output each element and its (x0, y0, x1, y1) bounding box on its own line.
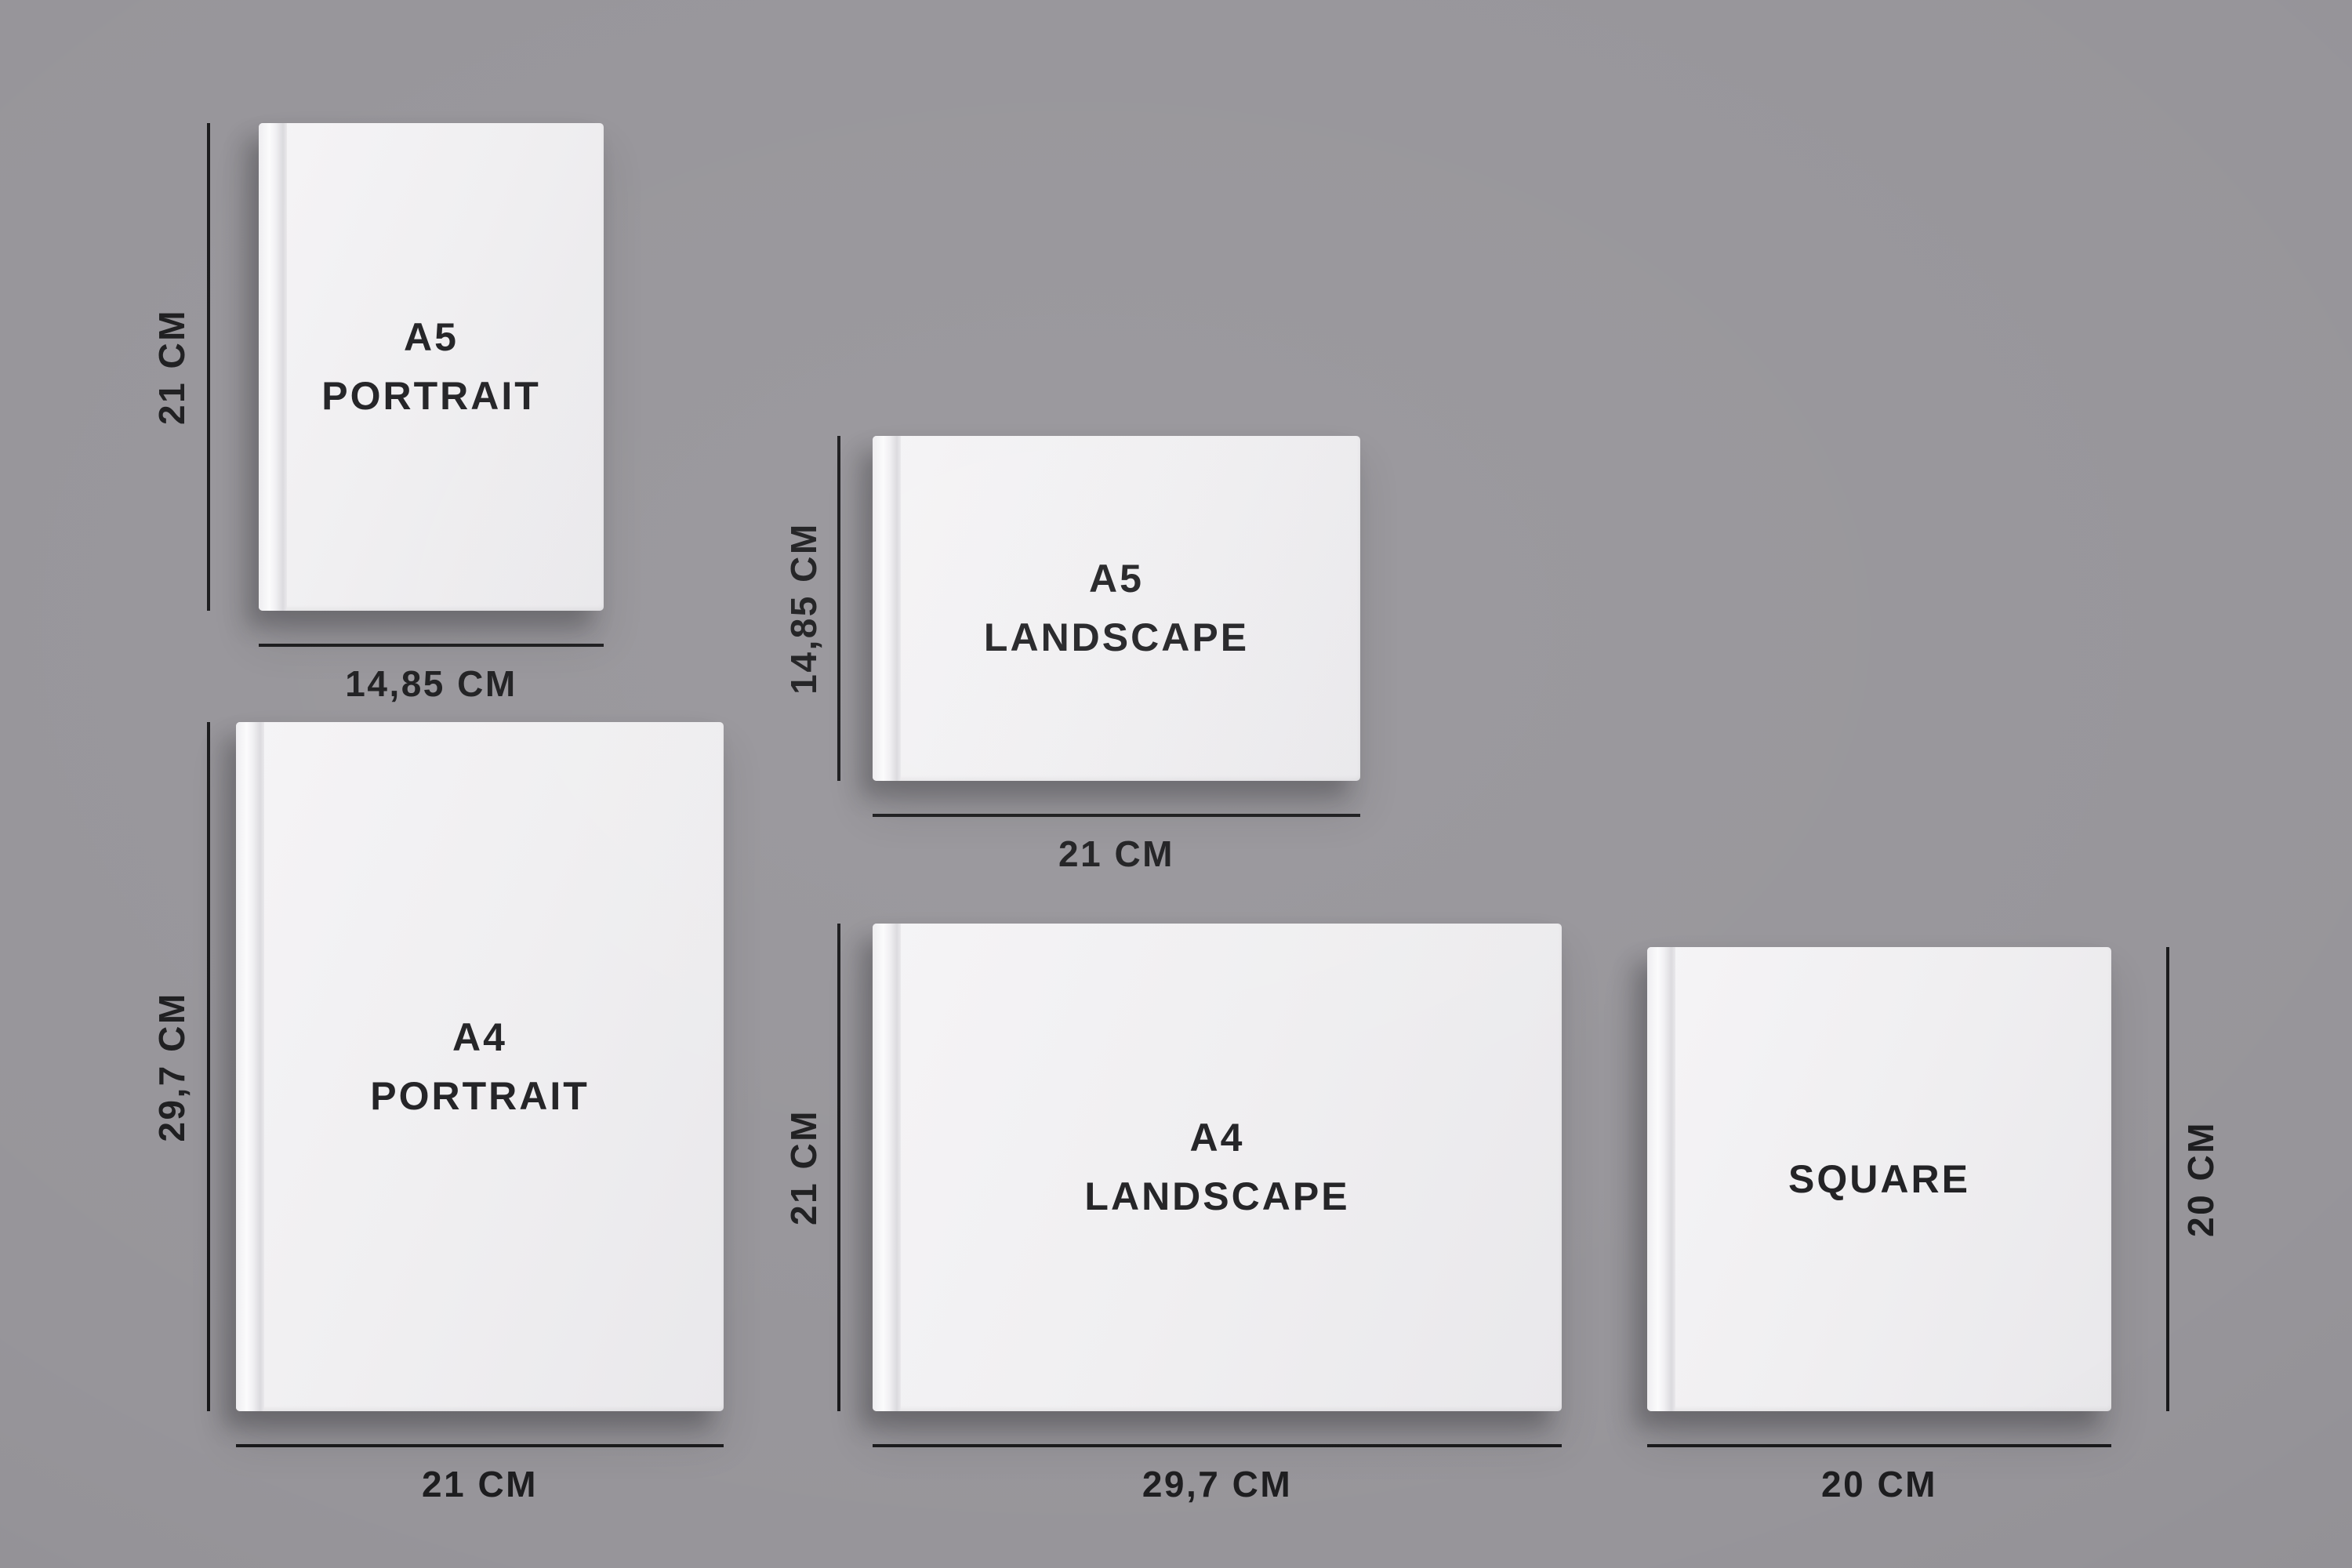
a4-landscape-width-dimension-line (873, 1444, 1562, 1447)
a4-landscape-group: 21 CM A4 LANDSCAPE 29,7 CM (873, 924, 1562, 1411)
a4-portrait-book-title: A4 PORTRAIT (236, 722, 724, 1411)
square-group: 20 CM SQUARE 20 CM (1647, 947, 2111, 1411)
a5-portrait-width-dimension-line (259, 644, 604, 647)
a4-portrait-width-dimension-label: 21 CM (422, 1463, 538, 1505)
square-book-title: SQUARE (1647, 947, 2111, 1411)
a4-portrait-width-dimension-line (236, 1444, 724, 1447)
a4-portrait-group: 29,7 CM A4 PORTRAIT 21 CM (236, 722, 724, 1411)
a5-landscape-group: 14,85 CM A5 LANDSCAPE 21 CM (873, 436, 1360, 781)
a5-landscape-width-dimension-label: 21 CM (1058, 833, 1174, 875)
a4-landscape-book-title: A4 LANDSCAPE (873, 924, 1562, 1411)
a5-portrait-height-dimension-line (207, 123, 210, 611)
a4-portrait-height-dimension-line (207, 722, 210, 1411)
a5-portrait-book-title: A5 PORTRAIT (259, 123, 604, 611)
a5-landscape-book-cover: A5 LANDSCAPE (873, 436, 1360, 781)
a4-landscape-book-cover: A4 LANDSCAPE (873, 924, 1562, 1411)
a5-landscape-width-dimension-line (873, 814, 1360, 817)
square-height-dimension-line (2166, 947, 2169, 1411)
a5-portrait-group: 21 CM A5 PORTRAIT 14,85 CM (259, 123, 604, 611)
book-size-comparison-diagram: { "page": { "background_color": "#97959a… (0, 0, 2352, 1568)
a5-landscape-height-dimension-label: 14,85 CM (782, 522, 825, 694)
square-width-dimension-label: 20 CM (1821, 1463, 1937, 1505)
a5-landscape-height-dimension-line (837, 436, 840, 781)
a5-portrait-height-dimension-label: 21 CM (151, 309, 193, 425)
a4-portrait-height-dimension-label: 29,7 CM (151, 992, 193, 1142)
a4-landscape-height-dimension-label: 21 CM (782, 1109, 825, 1225)
a4-landscape-width-dimension-label: 29,7 CM (1142, 1463, 1292, 1505)
a4-landscape-height-dimension-line (837, 924, 840, 1411)
a5-landscape-book-title: A5 LANDSCAPE (873, 436, 1360, 781)
a5-portrait-book-cover: A5 PORTRAIT (259, 123, 604, 611)
a4-portrait-book-cover: A4 PORTRAIT (236, 722, 724, 1411)
square-height-dimension-label: 20 CM (2180, 1121, 2222, 1237)
a5-portrait-width-dimension-label: 14,85 CM (345, 662, 517, 705)
square-width-dimension-line (1647, 1444, 2111, 1447)
square-book-cover: SQUARE (1647, 947, 2111, 1411)
